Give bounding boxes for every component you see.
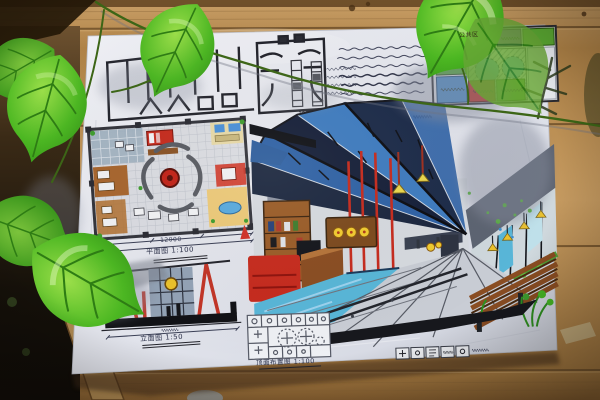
ceiling-plan-caption: 顶面布置图 1:100 <box>256 358 315 367</box>
photo-of-design-board: 12000 平面图 1:100 立面图 1:50 顶面布置图 1:100 公共区 <box>0 0 600 400</box>
floor-plan-dimension: 12000 <box>160 237 182 244</box>
scene-svg <box>0 0 600 400</box>
zoning-public-label: 公共区 <box>459 32 479 39</box>
vignette-overlay <box>0 0 600 400</box>
